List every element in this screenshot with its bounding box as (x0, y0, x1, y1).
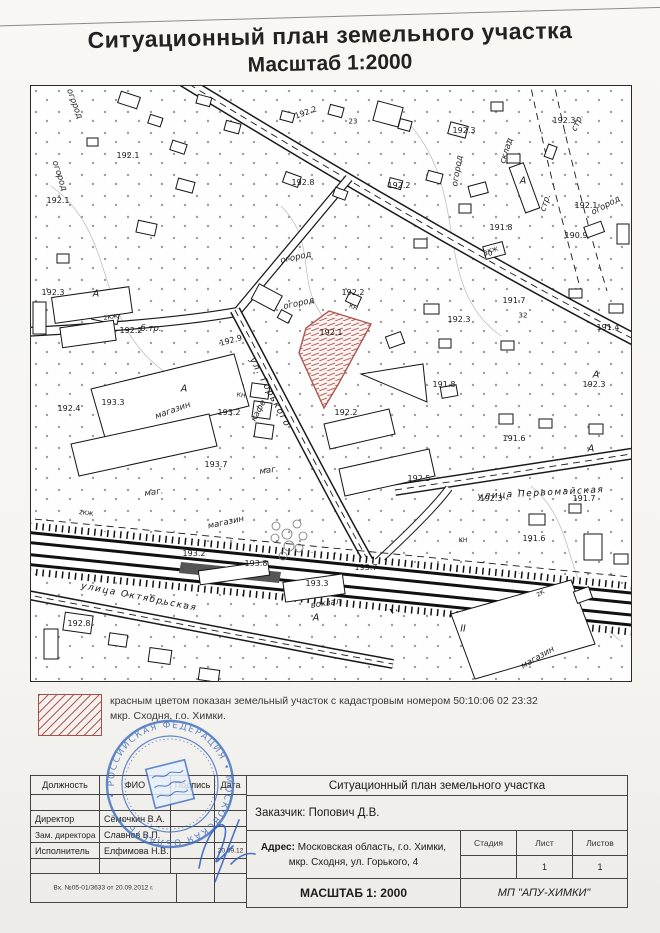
map-label: огород (280, 251, 312, 266)
customer-cell: Заказчик: Попович Д.В. (246, 795, 628, 831)
map-label: 191.6 (523, 535, 546, 543)
address-line-1: Московская область, г.о. Химки, (298, 842, 446, 853)
map-label: 192.2 (342, 289, 365, 297)
stage-header: Стадия (460, 830, 517, 856)
name-director: Сёмочкин В.А. (99, 810, 171, 827)
map-label: магазин (154, 401, 192, 422)
map-label: 23 (349, 119, 358, 126)
map-label: 192.1 (47, 197, 70, 205)
address-label: Адрес: (261, 842, 295, 853)
map-label: 192.3 (583, 381, 606, 389)
col-header-role: Должность (30, 775, 100, 795)
map-label: 192.2 (120, 327, 143, 335)
signature-cell (170, 810, 215, 827)
map-label: 190.9 (565, 232, 588, 240)
block-title-cell: Ситуационный план земельного участка (246, 775, 628, 796)
date-cell (214, 826, 247, 843)
map-label: магазин (520, 645, 556, 671)
map-label: 192.1 (117, 152, 140, 160)
map-labels-layer: 192.1192.1192.3192.2192.4193.3193.2193.7… (31, 86, 631, 681)
empty-cell (99, 794, 171, 811)
empty-cell (30, 858, 100, 874)
map-label: 2КЖ (78, 510, 93, 518)
role-executor: Исполнитель (30, 842, 100, 859)
role-director: Директор (30, 810, 100, 827)
map-label: 193.2 (218, 409, 241, 417)
sheets-header: Листов (572, 830, 628, 856)
map-label: 192.3 (448, 316, 471, 324)
role-deputy: Зам. директора (30, 826, 100, 843)
empty-cell (99, 858, 171, 874)
sheets-value: 1 (572, 855, 628, 879)
map-label: 192.3 (42, 289, 65, 297)
map-label: 192.2 (388, 182, 411, 190)
empty-cell (170, 858, 215, 874)
map-label: кафе (250, 399, 268, 423)
map-label: А (181, 384, 188, 394)
map-label: КН (236, 392, 246, 399)
legend-hatch-swatch (38, 694, 102, 736)
empty-cell (170, 794, 215, 811)
map-label: 191.6 (503, 435, 526, 443)
map-label: 192.2 (294, 105, 318, 120)
org-cell: МП "АПУ-ХИМКИ" (460, 878, 628, 908)
col-header-date: Дата (214, 775, 247, 795)
map-label: огород (283, 297, 315, 312)
date-executor: 20.09.12 (214, 842, 247, 859)
map-label: КН (348, 303, 358, 312)
map-label: А (593, 370, 600, 380)
map-label: огород (65, 88, 84, 120)
stage-value (460, 855, 517, 879)
legend-text: красным цветом показан земельный участок… (110, 694, 630, 724)
signature-cell (170, 842, 215, 859)
map-label: 193.7 (205, 461, 228, 469)
map-label: 30 (484, 251, 493, 258)
map-label: 191.4 (597, 324, 620, 332)
sheet-value: 1 (516, 855, 573, 879)
map-label: 192.1 (320, 329, 343, 337)
signature-cell (170, 826, 215, 843)
map-label: А (93, 289, 100, 299)
map-label: 191.7 (503, 297, 526, 305)
map-label: 192.5 (408, 475, 431, 483)
map-label: 192.3 (453, 127, 476, 135)
empty-cell (176, 873, 215, 903)
date-cell (214, 810, 247, 827)
map-label: улица Октябрьская (80, 582, 198, 613)
map-label: маг. (144, 487, 164, 498)
map-label: 192.9 (219, 334, 243, 348)
map-label: 193.2 (183, 550, 206, 558)
address-cell: Адрес: Московская область, г.о. Химки, м… (246, 830, 461, 879)
map-label: 193.8 (245, 560, 268, 568)
map-label: А (313, 613, 320, 623)
incoming-number-cell: Вх. №05-01/3633 от 20.09.2012 г. (30, 873, 177, 903)
map-label: огород (451, 155, 465, 187)
map-label: 192.4 (58, 405, 81, 413)
situational-plan-map: 192.1192.1192.3192.2192.4193.3193.2193.7… (30, 85, 632, 682)
map-label: маг. (259, 465, 279, 476)
map-label: огород (590, 195, 622, 217)
map-label: КН (459, 538, 468, 544)
map-label: огород (50, 160, 68, 192)
map-label: 192.2 (335, 409, 358, 417)
map-label: А (520, 176, 527, 186)
name-executor: Елфимова Н.В. (99, 842, 171, 859)
sheet-header: Лист (516, 830, 573, 856)
map-label: вокзал (310, 598, 341, 611)
col-header-name: ФИО (99, 775, 171, 795)
map-label: 193.3 (102, 399, 125, 407)
map-label: 193.3 (306, 580, 329, 588)
map-label: 191.8 (490, 224, 513, 232)
scanned-document-page: { "title": { "line1": "Ситуационный план… (0, 0, 660, 933)
empty-cell (214, 873, 247, 903)
map-label: магазин (207, 515, 245, 531)
map-label: 32 (519, 313, 528, 320)
address-line-2: мкр. Сходня, ул. Горького, 4 (289, 857, 419, 868)
map-label: 191.8 (433, 381, 456, 389)
col-header-signature: Подпись (170, 775, 215, 795)
empty-cell (30, 794, 100, 811)
map-label: II (460, 624, 466, 634)
scale-cell: МАСШТАБ 1: 2000 (246, 878, 461, 908)
map-label: 192.8 (292, 179, 315, 187)
map-label: 2КЖ (103, 314, 118, 322)
legend-line-2: мкр. Сходня, г.о. Химки. (110, 709, 630, 724)
legend-line-1: красным цветом показан земельный участок… (110, 694, 630, 709)
map-label: 193.7 (355, 564, 378, 572)
empty-cell (214, 794, 247, 811)
map-label: склад (499, 137, 515, 165)
map-label: 2К (536, 589, 546, 598)
map-label: 192.8 (68, 620, 91, 628)
map-label: А (588, 444, 595, 454)
map-label: б.тр. (141, 325, 162, 334)
empty-cell (214, 858, 247, 874)
map-label: стр. (539, 193, 553, 212)
name-deputy: Славнов В.П. (99, 826, 171, 843)
